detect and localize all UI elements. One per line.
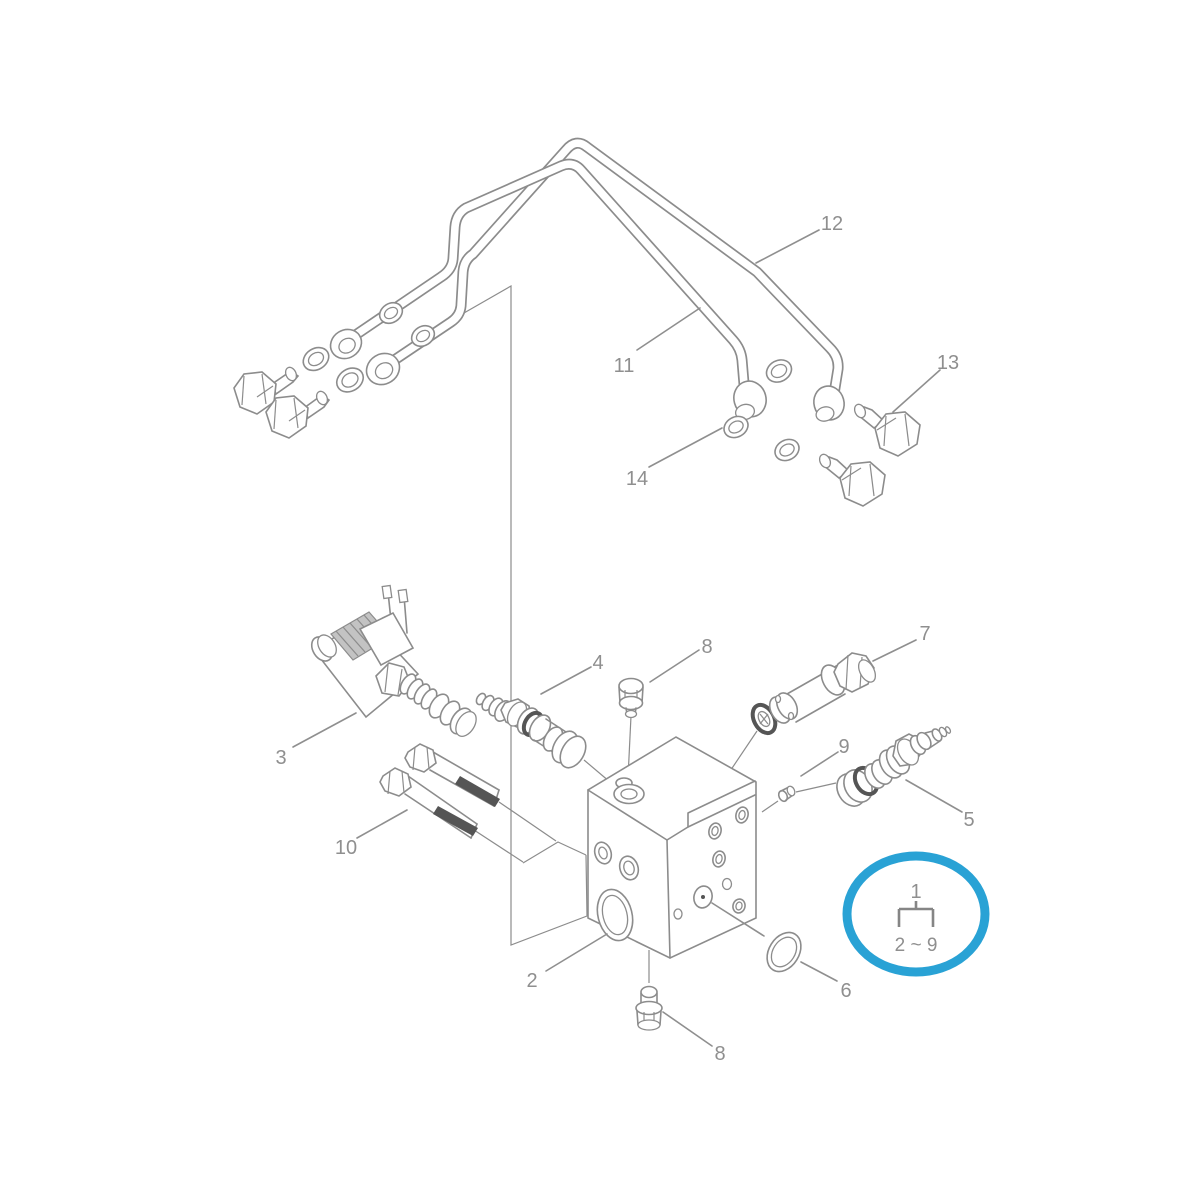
hex-plug-bottom (636, 950, 662, 1030)
part-label-2: 2 (526, 970, 537, 992)
pin (777, 785, 796, 803)
leader-13 (893, 370, 940, 412)
part-label-8-bottom: 8 (714, 1043, 725, 1065)
leader-9 (801, 752, 838, 776)
o-ring (760, 926, 808, 978)
panel-notch (523, 842, 586, 863)
callout-bracket (899, 901, 933, 927)
hex-bolt (853, 403, 920, 456)
leader-8b (663, 1012, 712, 1046)
leader-5 (906, 780, 962, 812)
leader-7 (873, 640, 916, 661)
hex-bolt (818, 453, 885, 506)
long-bolt (405, 744, 500, 807)
pipe-assembly (357, 143, 838, 394)
solenoid-valve (307, 586, 480, 740)
part-label-8-top: 8 (701, 636, 712, 658)
part-label-14: 14 (626, 468, 648, 490)
part-label-5: 5 (963, 809, 974, 831)
sealing-washer (771, 435, 802, 464)
leader-8a (650, 650, 699, 682)
group-callout: 1 2 ~ 9 (847, 856, 985, 972)
leader-12 (756, 230, 819, 263)
leader-2 (546, 934, 607, 971)
sealing-washer (763, 356, 796, 387)
solenoid-stem (397, 671, 480, 739)
callout-top-label: 1 (910, 881, 921, 903)
leader-14 (649, 428, 722, 467)
mounting-bolts (380, 744, 500, 838)
bolt-axis-line (499, 802, 556, 841)
part-label-12: 12 (821, 213, 843, 235)
leader-10 (357, 810, 407, 838)
left-banjo-bolts (234, 366, 329, 438)
banjo-eye (810, 383, 848, 424)
leader-4 (541, 667, 591, 694)
mounting-panel-outline (457, 286, 587, 945)
part-label-11: 11 (614, 355, 635, 377)
axis-line (762, 801, 778, 812)
part-label-6: 6 (840, 980, 851, 1002)
exploded-view-drawing: 2 3 4 5 6 7 8 8 9 10 11 12 13 14 1 2 ~ 9 (0, 0, 1200, 1200)
valve-block (588, 737, 756, 958)
callout-range-label: 2 ~ 9 (895, 935, 938, 956)
part-label-4: 4 (592, 652, 603, 674)
diagram-page: 2 3 4 5 6 7 8 8 9 10 11 12 13 14 1 2 ~ 9 (0, 0, 1200, 1200)
hex-bolt (266, 390, 329, 438)
part-label-13: 13 (937, 352, 959, 374)
cartridge-valve-4 (475, 692, 610, 782)
bolt-axis-line (474, 830, 523, 862)
banjo-eye (730, 377, 770, 421)
cartridge-valve-5 (762, 726, 951, 812)
part-label-7: 7 (919, 623, 930, 645)
leader-6b (801, 962, 837, 981)
part-label-10: 10 (335, 837, 357, 859)
sealing-washer (332, 363, 367, 396)
leader-3 (293, 713, 356, 747)
part-label-3: 3 (275, 747, 286, 769)
relief-valve-hex-cap (834, 653, 879, 692)
leader-11 (637, 308, 700, 350)
part-label-9: 9 (838, 736, 849, 758)
sealing-washer (299, 343, 333, 375)
axis-line (796, 783, 836, 792)
